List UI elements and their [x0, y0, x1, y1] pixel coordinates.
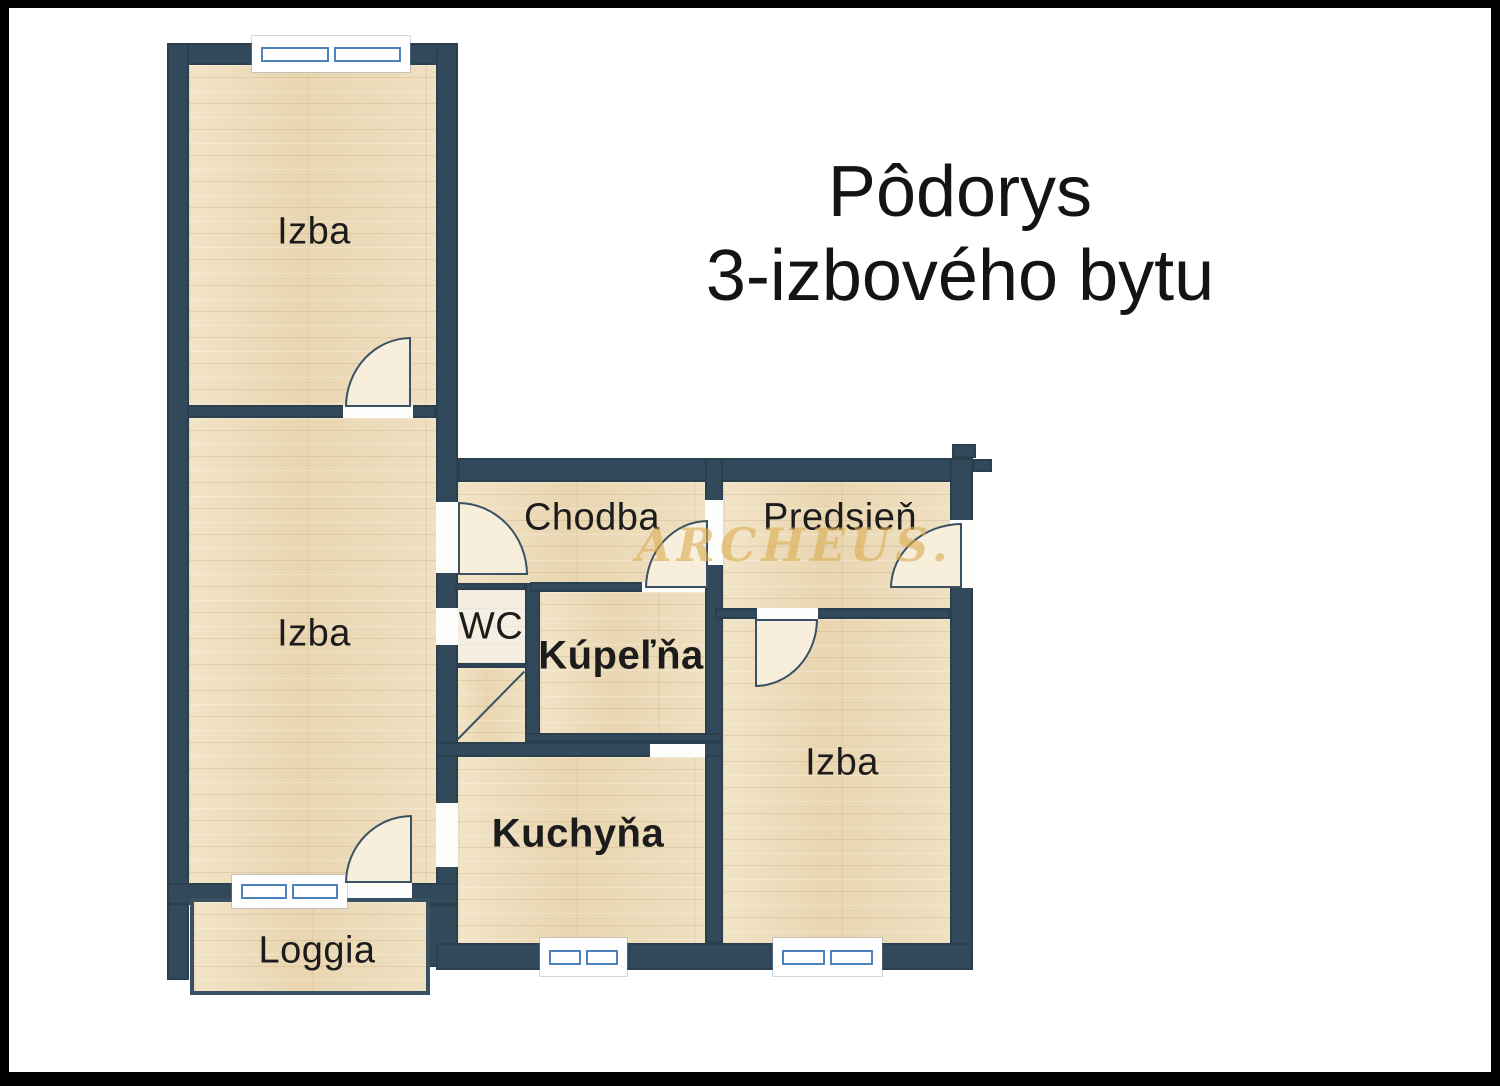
window-pane-icon	[292, 884, 338, 899]
window-pane-icon	[586, 950, 618, 965]
watermark: ARCHEUS.	[636, 518, 953, 572]
wall-leftwing-left	[167, 43, 189, 980]
window-izba-right	[773, 938, 882, 976]
window-pane-icon	[334, 47, 402, 62]
page-title-line2: 3-izbového bytu	[640, 234, 1280, 318]
opening-kuchyna-door	[650, 744, 705, 757]
window-izba-top	[252, 36, 410, 72]
room-label-loggia: Loggia	[258, 930, 375, 973]
floorplan-canvas: Izba Izba Chodba Predsieň WC Kúpeľňa Kuc…	[0, 0, 1500, 1086]
opening-izba-kuchyna	[436, 803, 458, 867]
wall-wc-top	[455, 583, 525, 590]
window-pane-icon	[830, 950, 873, 965]
wall-rightwing-bottom	[436, 943, 973, 970]
window-kuchyna	[540, 938, 627, 976]
room-label-wc: WC	[459, 606, 523, 649]
wall-stub-vertical	[952, 444, 976, 458]
room-label-kupelna: Kúpeľňa	[538, 634, 704, 679]
room-label-kuchyna: Kuchyňa	[492, 812, 664, 857]
opening-predsien-izba	[757, 608, 818, 619]
window-loggia	[232, 875, 347, 908]
opening-izba-chodba	[436, 502, 458, 573]
room-label-izba-mid: Izba	[277, 613, 351, 656]
page-title-line1: Pôdorys	[640, 150, 1280, 234]
room-label-izba-top: Izba	[277, 211, 351, 254]
window-pane-icon	[241, 884, 287, 899]
wall-wc-bottom	[455, 663, 525, 668]
room-label-izba-right: Izba	[805, 742, 879, 785]
window-pane-icon	[782, 950, 825, 965]
wall-stub-arm	[973, 459, 992, 472]
window-pane-icon	[549, 950, 581, 965]
window-pane-icon	[261, 47, 329, 62]
opening-wc-door	[436, 608, 458, 645]
page-title: Pôdorys 3-izbového bytu	[640, 150, 1280, 318]
wall-kupelna-bottom	[525, 733, 723, 742]
wall-predsien-izba	[715, 608, 950, 619]
